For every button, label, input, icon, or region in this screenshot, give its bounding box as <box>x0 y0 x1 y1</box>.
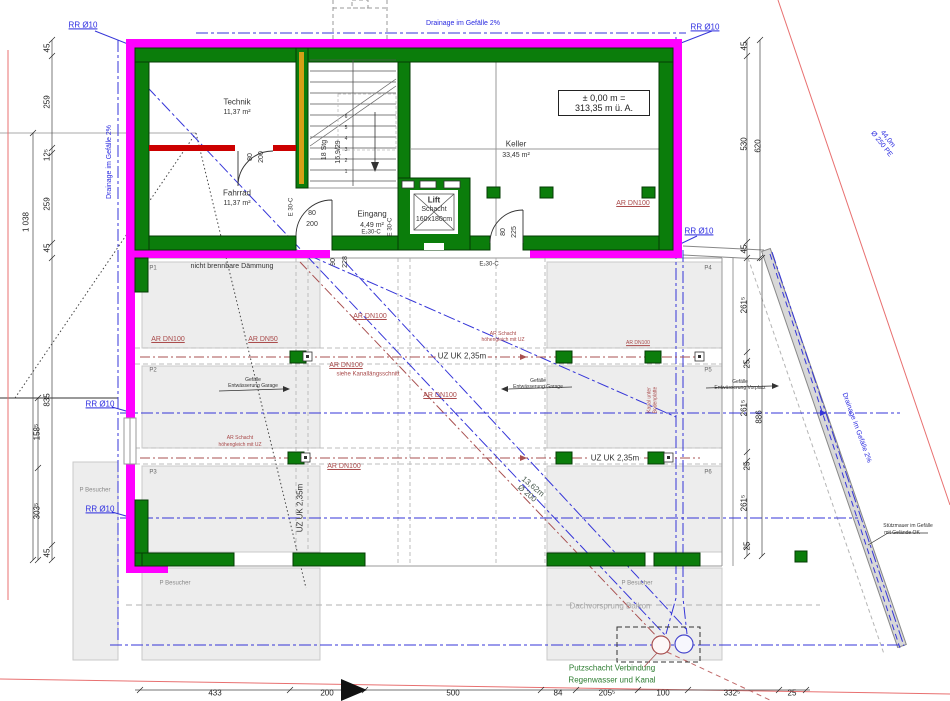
dim-left-1: 259 <box>42 95 51 108</box>
ar-dn100-7: AR DN100 <box>626 341 650 347</box>
ar-dn100-1: AR DN100 <box>151 336 184 344</box>
rr10-label-top-right: RR Ø10 <box>691 22 720 31</box>
stair-ratio-label: 16,9/29 <box>335 140 343 163</box>
stair-count-label: 18 Stg <box>321 140 329 160</box>
rr10-label-left-2: RR Ø10 <box>86 504 115 513</box>
ar-dn100-3: AR DN100 <box>329 362 362 370</box>
dim-left-lower-3: 45 <box>42 549 51 558</box>
rr10-label-right-mid: RR Ø10 <box>685 226 714 235</box>
garage-window <box>124 418 136 464</box>
section-marker <box>333 0 387 40</box>
ar-dn100-5: AR DN100 <box>327 463 360 471</box>
rr10-label-top-left: RR Ø10 <box>69 20 98 29</box>
door4-width: 80 <box>500 228 508 236</box>
stuetzmauer-note-1: Stützmauer im Gefälle <box>883 524 932 530</box>
gefaelle-garage-1b: Entwässerung Garage <box>228 384 278 390</box>
putzschacht-note-1: Putzschacht Verbindung <box>569 663 655 672</box>
door4-height: 225 <box>511 226 519 238</box>
door3-width: 90 <box>330 258 338 266</box>
fire-rating-h2: E₂30-C <box>479 262 498 269</box>
uz-label-1: UZ UK 2,35m <box>436 351 488 360</box>
ar-schacht-2b: höhengleich mit UZ <box>218 443 261 449</box>
room-label-keller: Keller <box>506 139 526 148</box>
door2-height: 200 <box>306 221 318 229</box>
room-label-lift-2: Schacht <box>421 206 446 214</box>
drainage-label-top: Drainage im Gefälle 2% <box>426 20 500 28</box>
room-area-keller: 33,45 m² <box>502 152 530 160</box>
dim-bottom-5: 100 <box>656 688 669 697</box>
room-label-eingang: Eingang <box>357 209 386 218</box>
ar-siehe-note: siehe Kanallängsschnitt <box>336 372 399 379</box>
dim-left-lower-2: 303⁵ <box>32 503 41 520</box>
visitor-stall-1: P Besucher <box>80 488 111 495</box>
stall-label-p6: P6 <box>704 470 711 477</box>
dim-left-total: 1 038 <box>21 212 30 232</box>
dim-bottom-0: 433 <box>208 688 221 697</box>
stall-label-p5: P5 <box>704 368 711 375</box>
dim-left-2: 12⁵ <box>42 149 51 161</box>
room-label-fahrrad: Fahrrad <box>223 188 251 197</box>
entry-arrow <box>341 679 367 701</box>
visitor-stall-2: P Besucher <box>160 581 191 588</box>
stair-step-5: 5 <box>345 126 348 132</box>
dim-bottom-3: 84 <box>554 688 563 697</box>
room-area-technik: 11,37 m² <box>223 109 250 117</box>
door2-width: 80 <box>308 210 316 218</box>
room-label-lift: Lift <box>428 195 440 204</box>
uz-label-3: UZ UK 2,35m <box>295 484 304 532</box>
ar-dn50-1: AR DN50 <box>248 336 278 344</box>
dim-right-lower-total: 886 <box>754 410 763 423</box>
ar-dn100-2: AR DN100 <box>353 313 386 321</box>
stall-label-p4: P4 <box>704 266 711 273</box>
ar-dn100-4: AR DN100 <box>423 392 456 400</box>
kanal-unter-2: Bodenplatte <box>653 387 659 414</box>
ar-schacht-2a: AR Schacht <box>227 436 253 442</box>
dim-left-lower-1: 158⁵ <box>32 424 41 441</box>
dim-right-lower-1: 25 <box>742 360 751 369</box>
dim-right-lower-2: 261⁵ <box>739 400 748 417</box>
dachvorsprung-note: Dachvorsprung Balkon <box>570 601 651 610</box>
room-label-technik: Technik <box>223 97 250 106</box>
ar-dn100-6: AR DN100 <box>616 200 649 208</box>
fire-rating-v1: E 30-C <box>289 198 296 217</box>
dim-left-0: 45 <box>42 44 51 53</box>
dim-bottom-6: 332⁵ <box>724 688 741 697</box>
stall-label-p1: P1 <box>149 266 156 273</box>
fire-rating-v2: E 30-C <box>388 218 395 237</box>
dim-right-0: 45 <box>739 42 748 51</box>
fire-rating-h1: E₂30-C <box>361 230 380 237</box>
room-area-fahrrad: 11,37 m² <box>223 200 250 208</box>
level-line-2: 313,35 m ü. A. <box>561 103 647 113</box>
stair-step-6: 6 <box>345 115 348 121</box>
dim-right-2: 45 <box>739 245 748 254</box>
dim-right-lower-5: 25 <box>742 542 751 551</box>
door1-height: 200 <box>258 151 266 163</box>
fire-wall <box>149 145 296 151</box>
ar-schacht-1b: höhengleich mit UZ <box>481 338 524 344</box>
stair-step-3: 3 <box>345 148 348 154</box>
uz-label-2: UZ UK 2,35m <box>589 453 641 462</box>
dim-bottom-2: 500 <box>446 688 459 697</box>
visitor-stall-3: P Besucher <box>622 581 653 588</box>
room-label-lift-size: 160x180cm <box>416 216 452 224</box>
stall-label-p3: P3 <box>149 470 156 477</box>
floor-plan: RR Ø10 Drainage im Gefälle 2% RR Ø10 RR … <box>0 0 950 701</box>
door3-height: 228 <box>342 256 350 268</box>
dim-bottom-1: 200 <box>320 688 333 697</box>
door1-width: 80 <box>247 153 255 161</box>
drainage-label-left: Drainage im Gefälle 2% <box>106 125 114 199</box>
dim-bottom-7: 25 <box>788 688 797 697</box>
insulation-note: nicht brennbare Dämmung <box>191 263 274 271</box>
rr10-label-left-1: RR Ø10 <box>86 399 115 408</box>
gefaelle-vorplatz-b: Entwässerung Vorplatz <box>714 386 765 392</box>
kanal-unter-label: Kanal unter Bodenplatte <box>647 387 659 414</box>
gefaelle-garage-2b: Entwässerung Garage <box>513 385 563 391</box>
dim-right-lower-3: 25 <box>742 462 751 471</box>
stair-step-4: 4 <box>345 137 348 143</box>
dim-right-lower-0: 261⁵ <box>739 297 748 314</box>
dim-left-lower-0: 835 <box>42 393 51 406</box>
stair-step-1: 1 <box>345 170 348 176</box>
dim-right-total: 620 <box>753 139 762 152</box>
stuetzmauer-note-2: mit Gelände OK <box>884 531 920 537</box>
putzschacht-note-2: Regenwasser und Kanal <box>568 675 655 684</box>
stall-label-p2: P2 <box>149 368 156 375</box>
dim-left-3: 259 <box>42 197 51 210</box>
stair-step-2: 2 <box>345 159 348 165</box>
dim-right-1: 530 <box>739 137 748 150</box>
dim-right-lower-4: 261⁵ <box>739 495 748 512</box>
stair-wall-core <box>299 52 304 184</box>
level-line-1: ± 0,00 m = <box>561 93 647 103</box>
dim-left-4: 45 <box>42 244 51 253</box>
dim-bottom-4: 205⁵ <box>599 688 616 697</box>
stairs <box>310 60 396 186</box>
level-annotation: ± 0,00 m = 313,35 m ü. A. <box>558 90 650 116</box>
